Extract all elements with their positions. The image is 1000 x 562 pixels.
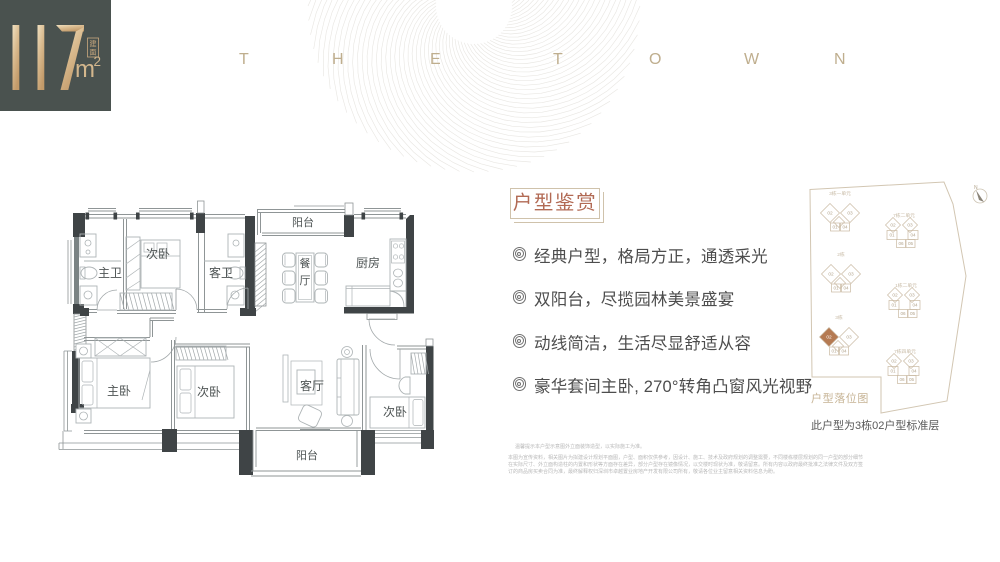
svg-text:N: N — [974, 185, 978, 191]
svg-text:02: 02 — [826, 335, 832, 341]
svg-text:3栋一单元: 3栋一单元 — [829, 190, 851, 197]
svg-text:7栋二单元: 7栋二单元 — [893, 212, 915, 219]
svg-text:06: 06 — [898, 241, 904, 246]
svg-text:04: 04 — [843, 286, 849, 291]
svg-text:3栋: 3栋 — [835, 314, 843, 321]
svg-text:厨房: 厨房 — [356, 255, 380, 270]
svg-text:01: 01 — [833, 286, 839, 291]
svg-text:03: 03 — [848, 272, 854, 278]
svg-text:02: 02 — [892, 293, 898, 299]
svg-text:建: 建 — [90, 39, 97, 48]
svg-text:04: 04 — [912, 303, 918, 308]
svg-text:05: 05 — [908, 241, 914, 246]
svg-text:主卫: 主卫 — [98, 266, 122, 280]
svg-text:04: 04 — [910, 233, 916, 238]
svg-text:01: 01 — [890, 369, 896, 374]
svg-text:次卧: 次卧 — [383, 405, 407, 419]
svg-text:06: 06 — [899, 377, 905, 382]
svg-text:7栋四单元: 7栋四单元 — [894, 348, 916, 355]
svg-text:餐: 餐 — [300, 256, 311, 270]
svg-text:客卫: 客卫 — [209, 265, 233, 280]
svg-text:03: 03 — [909, 293, 915, 299]
svg-text:01: 01 — [891, 303, 897, 308]
svg-text:次卧: 次卧 — [197, 385, 221, 399]
svg-text:04: 04 — [841, 349, 847, 354]
svg-text:阳台: 阳台 — [296, 448, 318, 462]
svg-text:03: 03 — [908, 359, 914, 365]
svg-text:02: 02 — [890, 223, 896, 229]
svg-text:主卧: 主卧 — [107, 384, 131, 398]
svg-text:01: 01 — [831, 349, 837, 354]
svg-text:05: 05 — [910, 311, 916, 316]
svg-text:05: 05 — [909, 377, 915, 382]
svg-text:04: 04 — [842, 225, 848, 230]
svg-text:06: 06 — [900, 311, 906, 316]
svg-text:03: 03 — [847, 211, 853, 217]
svg-text:01: 01 — [832, 225, 838, 230]
svg-text:2栋: 2栋 — [837, 251, 845, 258]
svg-text:04: 04 — [911, 369, 917, 374]
svg-text:次卧: 次卧 — [146, 247, 170, 261]
svg-text:客厅: 客厅 — [300, 378, 324, 393]
svg-text:03: 03 — [846, 335, 852, 341]
svg-text:03: 03 — [907, 223, 913, 229]
svg-text:阳台: 阳台 — [292, 215, 314, 229]
svg-text:厅: 厅 — [300, 275, 311, 287]
svg-text:02: 02 — [891, 359, 897, 365]
svg-text:1栋二单元: 1栋二单元 — [895, 282, 917, 289]
svg-text:02: 02 — [827, 211, 833, 217]
svg-text:02: 02 — [828, 272, 834, 278]
svg-text:01: 01 — [889, 233, 895, 238]
